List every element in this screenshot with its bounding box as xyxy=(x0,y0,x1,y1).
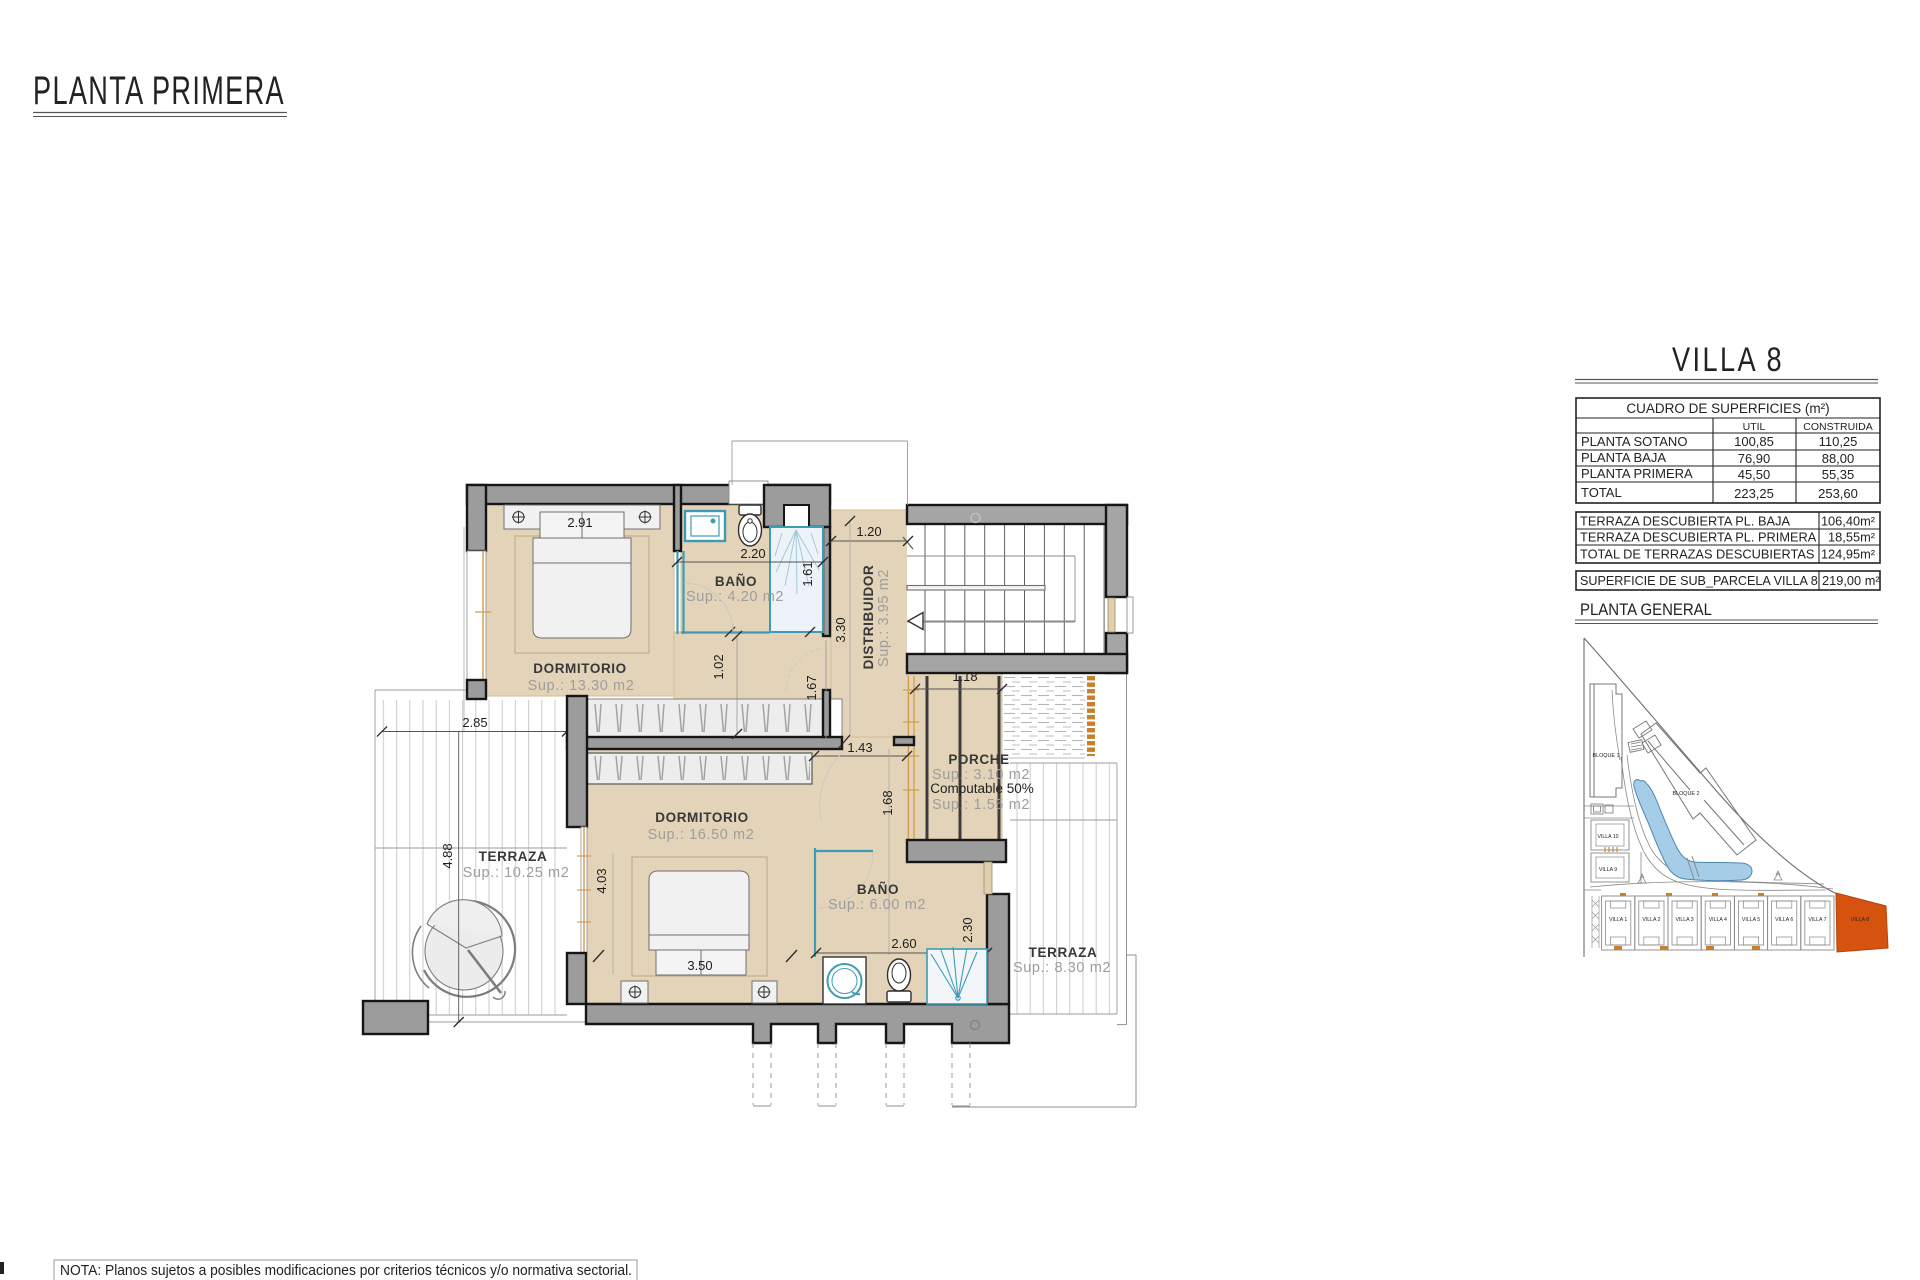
svg-text:TOTAL: TOTAL xyxy=(1581,485,1622,500)
svg-text:18,55m²: 18,55m² xyxy=(1828,530,1876,545)
svg-text:3.50: 3.50 xyxy=(687,958,712,973)
svg-text:45,50: 45,50 xyxy=(1738,467,1771,482)
svg-text:PLANTA GENERAL: PLANTA GENERAL xyxy=(1580,601,1712,619)
svg-text:223,25: 223,25 xyxy=(1734,486,1774,501)
svg-text:VILLA 9: VILLA 9 xyxy=(1599,867,1617,873)
svg-text:DISTRIBUIDOR: DISTRIBUIDOR xyxy=(861,565,876,670)
svg-text:1.43: 1.43 xyxy=(847,740,872,755)
svg-text:2.91: 2.91 xyxy=(567,515,592,530)
svg-text:VILLA 3: VILLA 3 xyxy=(1676,917,1694,923)
svg-text:BLOQUE 1: BLOQUE 1 xyxy=(1593,753,1620,759)
svg-text:1.68: 1.68 xyxy=(880,790,895,815)
svg-text:VILLA 7: VILLA 7 xyxy=(1808,917,1826,923)
svg-text:VILLA 5: VILLA 5 xyxy=(1742,917,1760,923)
svg-text:TERRAZA DESCUBIERTA PL. PRIMER: TERRAZA DESCUBIERTA PL. PRIMERA xyxy=(1580,530,1817,545)
svg-text:1.67: 1.67 xyxy=(804,675,819,700)
svg-text:TERRAZA: TERRAZA xyxy=(1029,945,1098,960)
svg-text:VILLA 8: VILLA 8 xyxy=(1672,341,1784,379)
svg-text:SUPERFICIE DE SUB_PARCELA VILL: SUPERFICIE DE SUB_PARCELA VILLA 8 xyxy=(1580,574,1818,588)
svg-text:4.88: 4.88 xyxy=(440,843,455,868)
svg-text:88,00: 88,00 xyxy=(1822,451,1855,466)
svg-text:1.61: 1.61 xyxy=(800,561,815,586)
svg-text:2.30: 2.30 xyxy=(960,917,975,942)
svg-text:PLANTA SOTANO: PLANTA SOTANO xyxy=(1581,434,1687,449)
svg-text:4.03: 4.03 xyxy=(594,868,609,893)
svg-text:Sup.: 1.55 m2: Sup.: 1.55 m2 xyxy=(932,797,1030,813)
svg-text:PORCHE: PORCHE xyxy=(948,752,1009,767)
svg-text:219,00 m²: 219,00 m² xyxy=(1822,573,1880,588)
svg-text:BAÑO: BAÑO xyxy=(857,882,899,897)
svg-text:NOTA: Planos sujetos a posible: NOTA: Planos sujetos a posibles modifica… xyxy=(60,1263,632,1279)
svg-text:Sup.: 16.50 m2: Sup.: 16.50 m2 xyxy=(648,827,755,843)
svg-text:VILLA 6: VILLA 6 xyxy=(1775,917,1793,923)
svg-text:253,60: 253,60 xyxy=(1818,486,1858,501)
svg-text:PLANTA BAJA: PLANTA BAJA xyxy=(1581,450,1666,465)
svg-text:1.18: 1.18 xyxy=(952,669,977,684)
svg-text:2.60: 2.60 xyxy=(891,936,916,951)
svg-text:Sup.: 6.00 m2: Sup.: 6.00 m2 xyxy=(828,897,926,913)
svg-text:DORMITORIO: DORMITORIO xyxy=(655,810,749,825)
svg-text:2.20: 2.20 xyxy=(740,546,765,561)
svg-text:VILLA 1: VILLA 1 xyxy=(1609,917,1627,923)
svg-text:BLOQUE 2: BLOQUE 2 xyxy=(1673,791,1700,797)
svg-text:Sup.: 13.30 m2: Sup.: 13.30 m2 xyxy=(528,678,635,694)
svg-text:110,25: 110,25 xyxy=(1819,434,1858,449)
svg-text:VILLA 4: VILLA 4 xyxy=(1709,917,1727,923)
svg-text:TERRAZA: TERRAZA xyxy=(479,849,548,864)
svg-text:UTIL: UTIL xyxy=(1743,421,1766,433)
svg-text:Sup.: 3.95 m2: Sup.: 3.95 m2 xyxy=(876,569,892,667)
svg-text:TOTAL DE TERRAZAS DESCUBIERTAS: TOTAL DE TERRAZAS DESCUBIERTAS xyxy=(1580,547,1814,562)
svg-text:106,40m²: 106,40m² xyxy=(1821,514,1876,529)
svg-text:3.30: 3.30 xyxy=(833,617,848,642)
svg-text:Sup.: 10.25 m2: Sup.: 10.25 m2 xyxy=(463,865,570,881)
svg-text:55,35: 55,35 xyxy=(1822,467,1855,482)
svg-text:124,95m²: 124,95m² xyxy=(1821,547,1876,562)
svg-text:TERRAZA DESCUBIERTA PL. BAJA: TERRAZA DESCUBIERTA PL. BAJA xyxy=(1580,514,1790,529)
svg-text:VILLA 10: VILLA 10 xyxy=(1597,834,1618,840)
svg-text:CONSTRUIDA: CONSTRUIDA xyxy=(1803,421,1872,433)
svg-text:Sup.: 4.20 m2: Sup.: 4.20 m2 xyxy=(686,589,784,605)
svg-text:BAÑO: BAÑO xyxy=(715,574,757,589)
svg-text:2.85: 2.85 xyxy=(462,715,487,730)
svg-text:PLANTA PRIMERA: PLANTA PRIMERA xyxy=(1581,466,1693,481)
svg-text:CUADRO DE SUPERFICIES (m²): CUADRO DE SUPERFICIES (m²) xyxy=(1626,401,1829,416)
svg-text:PLANTA PRIMERA: PLANTA PRIMERA xyxy=(33,69,285,113)
svg-text:Sup.: 8.30 m2: Sup.: 8.30 m2 xyxy=(1013,960,1111,976)
svg-text:VILLA 2: VILLA 2 xyxy=(1642,917,1660,923)
svg-text:VILLA 8: VILLA 8 xyxy=(1851,917,1869,923)
svg-text:Computable 50%: Computable 50% xyxy=(930,781,1034,796)
svg-text:1.20: 1.20 xyxy=(856,524,881,539)
svg-text:76,90: 76,90 xyxy=(1738,451,1771,466)
svg-text:100,85: 100,85 xyxy=(1734,434,1774,449)
svg-text:DORMITORIO: DORMITORIO xyxy=(533,661,627,676)
svg-text:1.02: 1.02 xyxy=(711,654,726,679)
